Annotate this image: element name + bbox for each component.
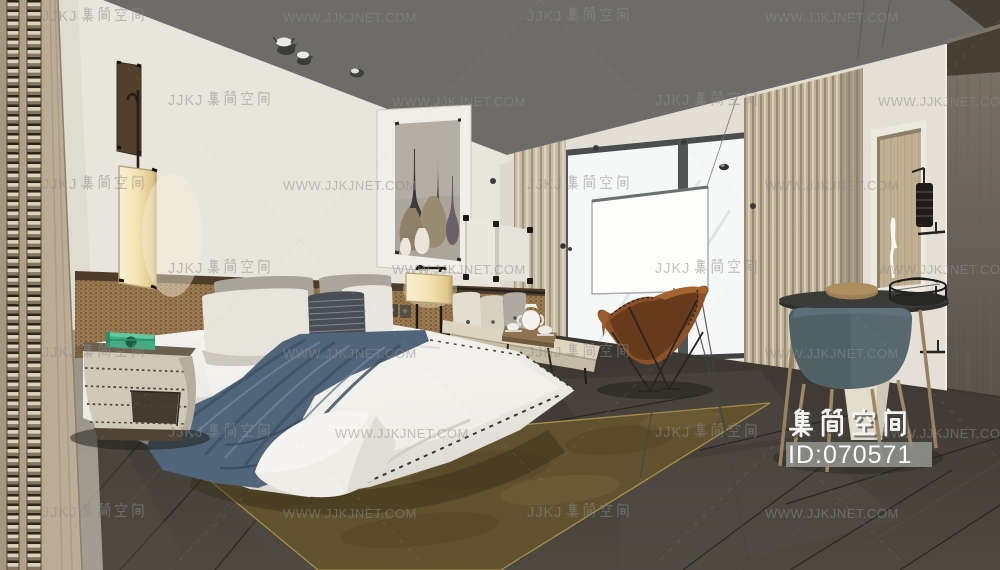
svg-text:ID:070571: ID:070571	[788, 441, 912, 469]
